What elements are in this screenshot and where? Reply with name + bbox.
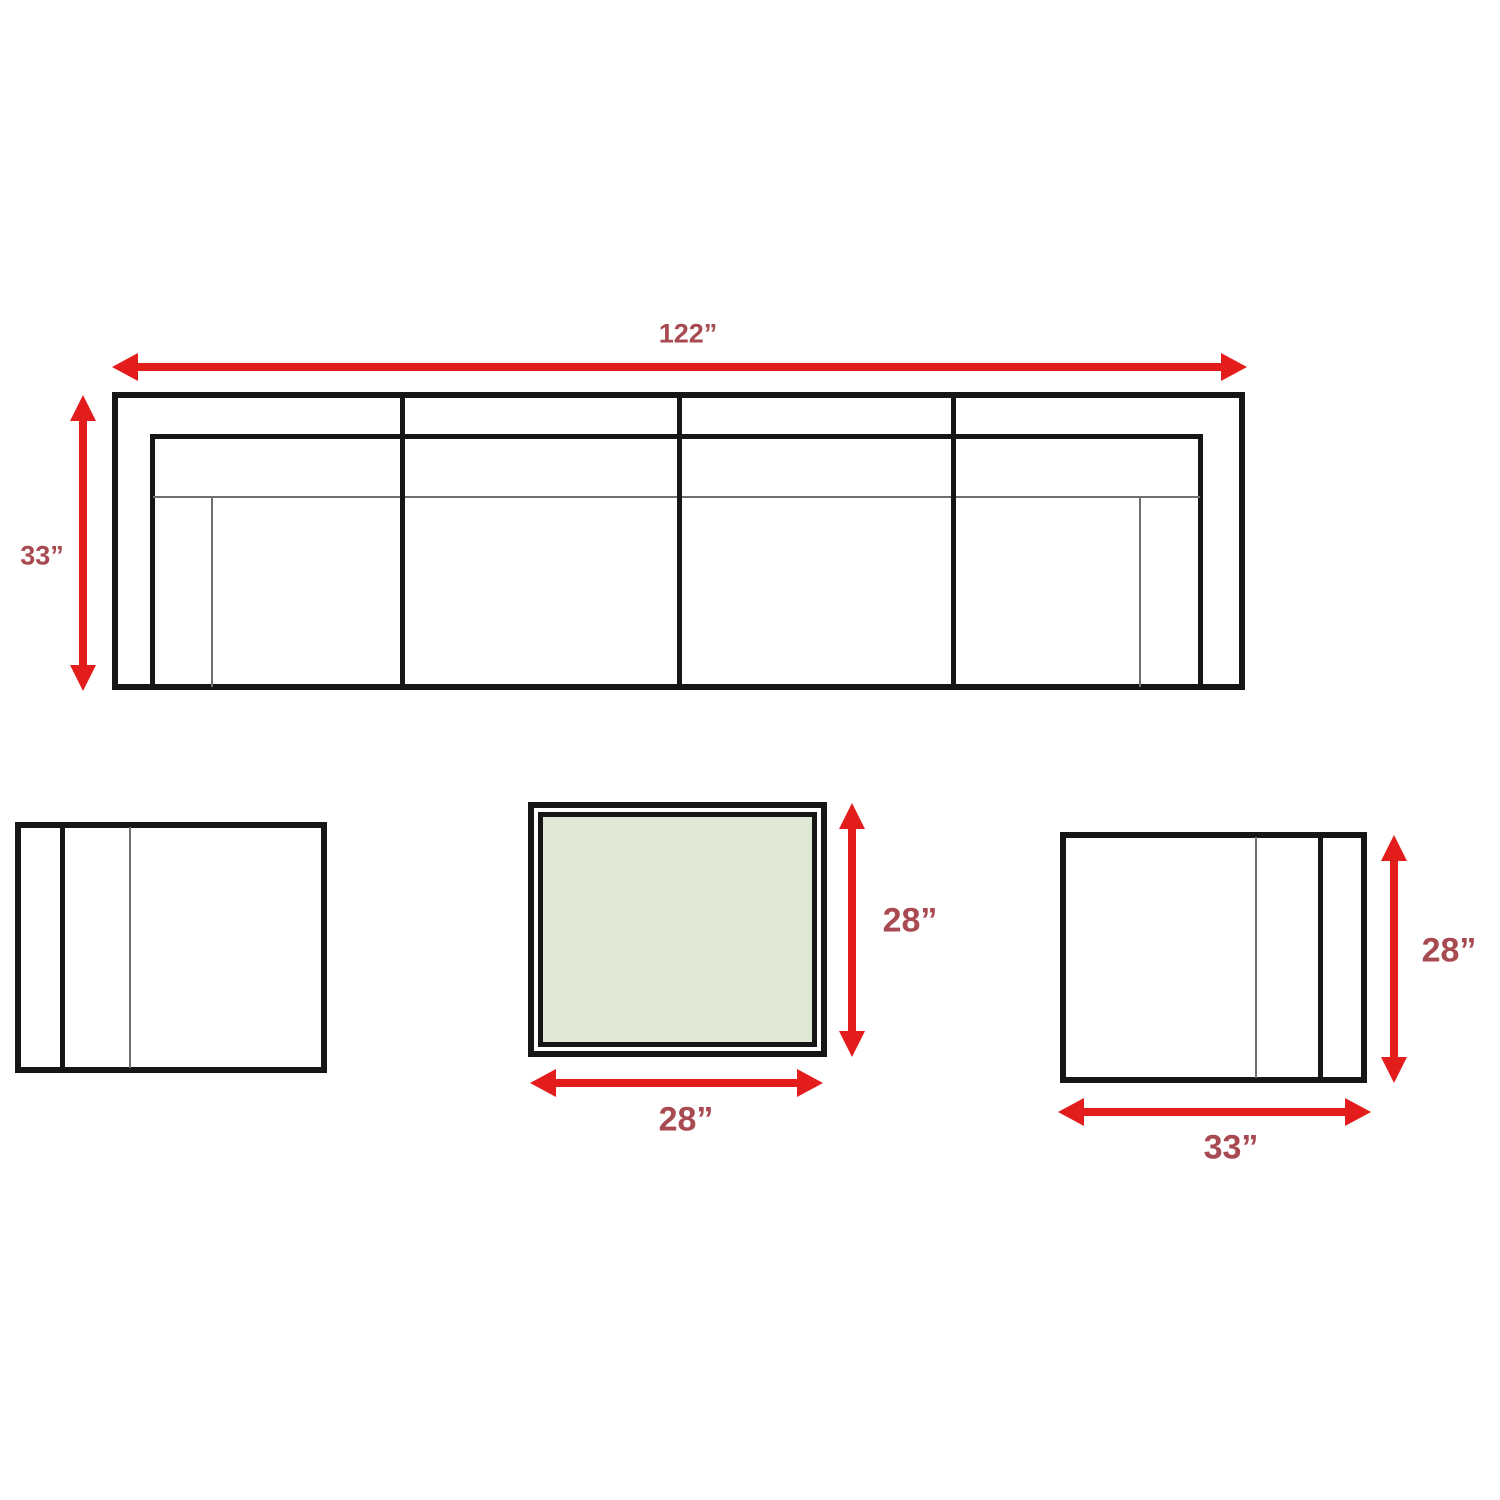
chair-right-seam-line xyxy=(1255,837,1257,1078)
sofa-depth-arrow-icon xyxy=(79,421,87,665)
sofa-depth-label: 33” xyxy=(20,541,64,572)
sofa-seat-divider xyxy=(951,397,956,686)
table-width-arrow-icon xyxy=(556,1079,797,1087)
sofa-width-arrow-icon xyxy=(138,363,1221,371)
chair-left-arm-line xyxy=(60,827,65,1068)
sofa-width-label: 122” xyxy=(659,319,718,350)
table-height-arrow-icon xyxy=(848,829,856,1031)
sofa-seat-divider xyxy=(677,397,682,686)
furniture-dimension-diagram: 122” 33” 28” 28” 28” 33” xyxy=(0,0,1500,1500)
chair-width-label: 33” xyxy=(1204,1129,1259,1168)
table-height-label: 28” xyxy=(883,902,938,941)
chair-right-arm-line xyxy=(1318,837,1323,1078)
chair-height-label: 28” xyxy=(1422,932,1477,971)
table-width-label: 28” xyxy=(659,1101,714,1140)
sofa-seat-divider xyxy=(400,397,405,686)
coffee-table-top xyxy=(538,812,817,1047)
chair-left-seam-line xyxy=(129,827,131,1068)
chair-height-arrow-icon xyxy=(1390,861,1398,1057)
coffee-table-outline xyxy=(528,802,827,1057)
sofa-left-arm-line xyxy=(211,497,213,687)
sofa-right-arm-line xyxy=(1139,497,1141,687)
chair-width-arrow-icon xyxy=(1084,1108,1345,1116)
